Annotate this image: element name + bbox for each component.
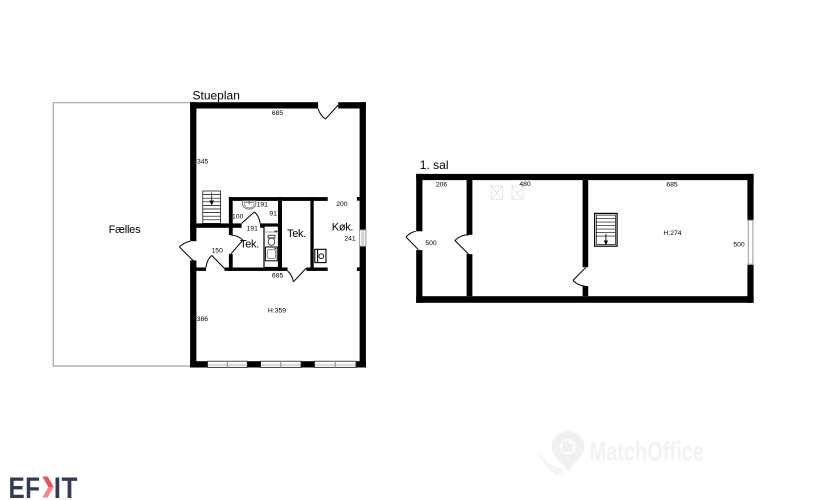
svg-text:200: 200: [336, 201, 348, 208]
svg-text:EF: EF: [9, 471, 41, 500]
svg-text:685: 685: [272, 110, 284, 117]
svg-text:Tek.: Tek.: [240, 239, 259, 251]
svg-text:500: 500: [425, 240, 437, 247]
svg-text:685: 685: [272, 272, 284, 279]
svg-text:241: 241: [344, 235, 356, 242]
svg-text:685: 685: [666, 182, 678, 189]
svg-text:IT: IT: [54, 471, 78, 500]
svg-text:H:359: H:359: [268, 308, 286, 315]
svg-text:480: 480: [519, 181, 531, 188]
svg-text:Stueplan: Stueplan: [193, 88, 240, 102]
svg-text:100: 100: [232, 214, 244, 221]
svg-text:191: 191: [247, 226, 259, 233]
svg-text:206: 206: [436, 182, 448, 189]
svg-text:91: 91: [269, 210, 277, 217]
svg-text:500: 500: [733, 242, 745, 249]
svg-text:1. sal: 1. sal: [420, 158, 449, 172]
svg-text:Køk.: Køk.: [332, 222, 354, 234]
svg-text:Tek.: Tek.: [287, 228, 306, 240]
svg-text:386: 386: [197, 316, 209, 323]
svg-text:Fælles: Fælles: [109, 224, 142, 236]
svg-text:191: 191: [257, 201, 269, 208]
svg-text:345: 345: [197, 159, 209, 166]
svg-text:MatchOffice: MatchOffice: [590, 437, 704, 468]
svg-text:150: 150: [212, 247, 224, 254]
svg-text:H:274: H:274: [663, 230, 681, 237]
